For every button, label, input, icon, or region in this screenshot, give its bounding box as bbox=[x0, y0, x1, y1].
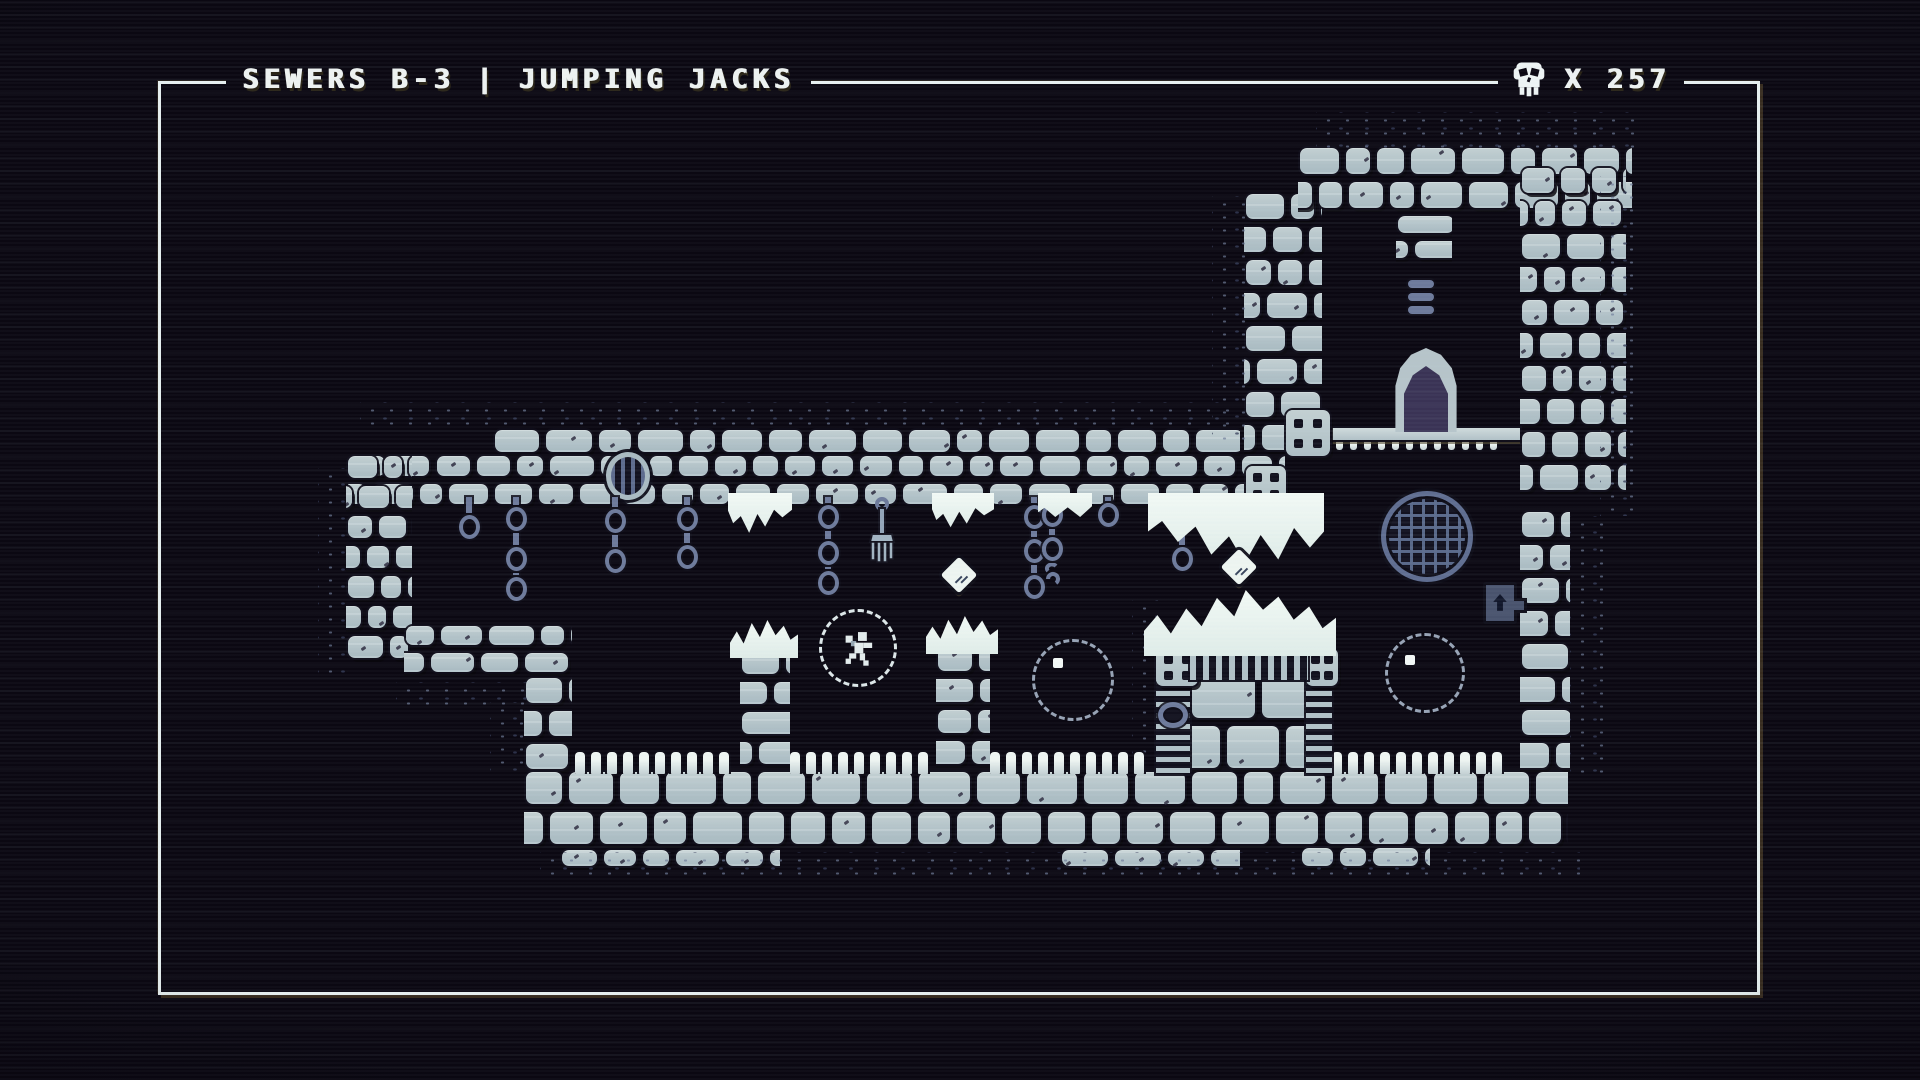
brick bbox=[1319, 182, 1343, 208]
brick-speck bbox=[1154, 822, 1160, 827]
brick bbox=[769, 430, 801, 452]
brick-speck bbox=[1312, 364, 1318, 369]
brick bbox=[1278, 260, 1302, 285]
ledge-tooth bbox=[1490, 441, 1497, 450]
brick-speck bbox=[816, 775, 822, 780]
floor-tooth bbox=[655, 752, 665, 774]
floor-tooth bbox=[822, 752, 832, 774]
brick bbox=[348, 636, 383, 658]
brick bbox=[1298, 182, 1312, 208]
brick bbox=[1390, 182, 1413, 208]
brick bbox=[549, 711, 572, 736]
floor-tooth bbox=[990, 752, 1000, 774]
floor-tooth bbox=[1118, 752, 1128, 774]
floor-tooth bbox=[591, 752, 601, 774]
brick-speck bbox=[1110, 462, 1116, 467]
brick bbox=[1540, 333, 1573, 358]
floor-tooth bbox=[671, 752, 681, 774]
brick bbox=[723, 772, 751, 804]
brick-speck bbox=[733, 469, 739, 474]
brick bbox=[346, 606, 361, 628]
brick-speck bbox=[1238, 759, 1244, 764]
brick bbox=[1579, 333, 1600, 358]
brick-speck bbox=[822, 444, 828, 449]
hanging-chain bbox=[607, 497, 623, 575]
brick bbox=[1084, 772, 1127, 804]
brick bbox=[569, 772, 613, 804]
brick bbox=[1562, 677, 1570, 702]
brick bbox=[1550, 545, 1570, 570]
brick bbox=[525, 653, 568, 672]
brick bbox=[1377, 148, 1405, 174]
floor-tooth bbox=[1070, 752, 1080, 774]
brick-speck bbox=[1502, 820, 1508, 825]
ledge-tooth bbox=[1406, 441, 1413, 450]
brick bbox=[1553, 366, 1573, 391]
brick bbox=[1535, 201, 1555, 226]
brick bbox=[1520, 333, 1533, 358]
brick-speck bbox=[1012, 462, 1018, 467]
brick bbox=[571, 626, 572, 645]
brick bbox=[381, 576, 402, 598]
brick bbox=[989, 430, 1029, 452]
floor-tooth bbox=[1086, 752, 1096, 774]
hanging-chain bbox=[1026, 497, 1042, 601]
brick bbox=[1170, 812, 1215, 844]
brick bbox=[1522, 234, 1560, 259]
brick-speck bbox=[997, 499, 1003, 504]
brick bbox=[1469, 182, 1508, 208]
brick bbox=[1222, 812, 1269, 844]
brick-speck bbox=[384, 562, 390, 567]
brick bbox=[809, 430, 857, 452]
chain-stem bbox=[1031, 497, 1037, 503]
brick-speck bbox=[1569, 205, 1575, 210]
brick bbox=[957, 812, 995, 844]
brick bbox=[1036, 430, 1079, 452]
brick bbox=[654, 812, 686, 844]
brick bbox=[441, 626, 482, 645]
left-pillar bbox=[740, 650, 790, 772]
brick-speck bbox=[1175, 462, 1181, 467]
brick bbox=[600, 812, 648, 844]
brick bbox=[1332, 772, 1378, 804]
dither-texture bbox=[318, 468, 348, 682]
brick bbox=[368, 606, 386, 628]
floor-teeth bbox=[575, 748, 741, 774]
brick bbox=[722, 430, 763, 452]
brick bbox=[495, 430, 539, 452]
ledge-tooth bbox=[1336, 441, 1343, 450]
ledge-tooth bbox=[1476, 441, 1483, 450]
brick bbox=[980, 679, 990, 702]
brick-speck bbox=[716, 495, 722, 500]
brick bbox=[517, 456, 543, 476]
brick bbox=[1156, 456, 1197, 476]
brick bbox=[420, 484, 442, 504]
brick bbox=[1027, 772, 1077, 804]
floor-tooth bbox=[886, 752, 896, 774]
brick bbox=[1520, 465, 1533, 490]
floor-tooth bbox=[1038, 752, 1048, 774]
brick bbox=[1192, 772, 1237, 804]
death-counter: X 257 bbox=[1564, 64, 1670, 95]
brick-speck bbox=[1247, 691, 1253, 696]
brick bbox=[1246, 260, 1271, 285]
brick-speck bbox=[451, 461, 457, 466]
brick bbox=[1000, 456, 1033, 476]
brick bbox=[1135, 772, 1185, 804]
brick-speck bbox=[465, 657, 471, 662]
brick-speck bbox=[791, 470, 797, 475]
brick-speck bbox=[1252, 302, 1258, 307]
floor-tooth bbox=[1428, 752, 1438, 774]
brick bbox=[1522, 512, 1554, 537]
brick-speck bbox=[1538, 618, 1544, 623]
chain-stem bbox=[684, 497, 690, 505]
brick-speck bbox=[1438, 150, 1444, 155]
floor-tooth bbox=[838, 752, 848, 774]
floor-tooth bbox=[1364, 752, 1374, 774]
hanging-chain bbox=[1100, 497, 1116, 529]
tower-emblem bbox=[1158, 702, 1188, 728]
brick-speck bbox=[1589, 474, 1595, 479]
floor-tooth bbox=[1460, 752, 1470, 774]
brick-speck bbox=[1570, 307, 1576, 312]
brick bbox=[867, 772, 912, 804]
brick-speck bbox=[390, 463, 396, 468]
brick bbox=[406, 626, 434, 645]
brick bbox=[1522, 432, 1545, 457]
brick bbox=[1567, 234, 1604, 259]
dither-texture bbox=[1316, 112, 1636, 148]
brick bbox=[690, 430, 715, 452]
hanging-chain bbox=[508, 497, 524, 603]
brick bbox=[1040, 456, 1081, 476]
brick bbox=[550, 812, 593, 844]
chain-link bbox=[818, 505, 839, 529]
brick bbox=[938, 710, 971, 733]
chain-stem bbox=[825, 497, 831, 503]
brick bbox=[1421, 182, 1463, 208]
chain-link bbox=[1098, 503, 1119, 527]
brick bbox=[860, 456, 893, 476]
brick-speck bbox=[576, 778, 582, 783]
brick bbox=[742, 712, 790, 734]
brick bbox=[1536, 772, 1568, 804]
brick bbox=[1349, 182, 1383, 208]
brick bbox=[970, 456, 993, 476]
brick bbox=[872, 812, 911, 844]
brick bbox=[524, 711, 542, 736]
brick-speck bbox=[937, 832, 943, 837]
brick bbox=[1522, 366, 1546, 391]
brick-speck bbox=[1222, 486, 1228, 491]
game-screen[interactable]: SEWERS B-3 | JUMPING JACKS X 257 bbox=[0, 0, 1920, 1080]
chain-stem bbox=[825, 567, 831, 569]
brick bbox=[1520, 201, 1528, 226]
brick bbox=[1192, 676, 1255, 718]
spring-coil bbox=[1408, 280, 1434, 314]
chain-link bbox=[459, 515, 480, 539]
brick bbox=[1267, 293, 1307, 318]
hanging-chain bbox=[461, 497, 477, 541]
brick-speck bbox=[1538, 217, 1544, 222]
floor-tooth bbox=[1134, 752, 1144, 774]
ledge-tooth bbox=[1434, 441, 1441, 450]
brick bbox=[1092, 812, 1120, 844]
brick-speck bbox=[1396, 248, 1401, 253]
empty-bubble bbox=[1032, 639, 1114, 721]
dither-texture bbox=[490, 702, 526, 774]
brick bbox=[1304, 359, 1322, 384]
chain-stem bbox=[513, 573, 519, 575]
brick bbox=[1484, 772, 1529, 804]
brick bbox=[1520, 743, 1549, 768]
brick-speck bbox=[1378, 838, 1384, 843]
brick bbox=[1048, 812, 1085, 844]
brick bbox=[785, 456, 815, 476]
brick bbox=[936, 741, 965, 764]
bubble-highlight bbox=[1053, 658, 1063, 668]
brick bbox=[650, 456, 672, 476]
left-ledge bbox=[404, 624, 572, 678]
brick bbox=[1555, 611, 1570, 636]
chain-link bbox=[677, 545, 698, 569]
brick-speck bbox=[1579, 277, 1585, 282]
brick-speck bbox=[379, 621, 385, 626]
brick bbox=[1244, 293, 1260, 318]
exit-door[interactable] bbox=[1392, 348, 1460, 432]
brick bbox=[919, 772, 969, 804]
brick bbox=[978, 710, 990, 733]
brick bbox=[1086, 430, 1111, 452]
right-pillar bbox=[936, 646, 990, 772]
brick bbox=[1522, 300, 1547, 325]
rivet-tile bbox=[1286, 410, 1330, 456]
floor-tooth bbox=[575, 752, 585, 774]
chain-link bbox=[506, 507, 527, 531]
brick-speck bbox=[707, 443, 713, 448]
brick bbox=[1124, 456, 1149, 476]
brick-speck bbox=[1129, 471, 1135, 476]
floor-tooth bbox=[1348, 752, 1358, 774]
ceiling-vent bbox=[606, 452, 650, 500]
ledge-tooth bbox=[1448, 441, 1455, 450]
brick bbox=[1309, 227, 1322, 252]
chain-stem bbox=[1031, 531, 1037, 537]
chain-stem bbox=[1031, 565, 1037, 573]
brick-speck bbox=[1289, 376, 1295, 381]
brick bbox=[346, 546, 360, 568]
brick bbox=[899, 456, 923, 476]
up-arrow-icon bbox=[1491, 591, 1509, 615]
brick bbox=[1300, 148, 1339, 174]
floor-teeth bbox=[1332, 748, 1522, 774]
brick bbox=[1262, 676, 1308, 718]
brick bbox=[1002, 812, 1040, 844]
brick bbox=[1520, 677, 1555, 702]
brick bbox=[409, 456, 412, 478]
brick-speck bbox=[416, 640, 422, 645]
chain-stem bbox=[513, 533, 519, 545]
brick bbox=[666, 772, 716, 804]
brick-speck bbox=[1217, 467, 1223, 472]
player-bubble[interactable] bbox=[819, 609, 897, 687]
floor-tooth bbox=[1492, 752, 1502, 774]
chain-link bbox=[818, 571, 839, 595]
brick-speck bbox=[610, 443, 616, 448]
brick bbox=[1544, 267, 1565, 292]
brick-speck bbox=[412, 470, 418, 475]
floor-tooth bbox=[790, 752, 800, 774]
brick bbox=[822, 456, 853, 476]
brick bbox=[1314, 293, 1322, 318]
brick bbox=[477, 456, 510, 476]
brick bbox=[832, 812, 866, 844]
brick-speck bbox=[962, 434, 968, 439]
brick bbox=[930, 456, 963, 476]
brick bbox=[524, 812, 543, 844]
brick bbox=[1455, 812, 1489, 844]
brick bbox=[774, 682, 790, 704]
brick-speck bbox=[528, 462, 534, 467]
floor-band bbox=[524, 770, 1568, 850]
ledge-tooth bbox=[1420, 441, 1427, 450]
brick bbox=[1257, 359, 1297, 384]
brick-speck bbox=[917, 487, 923, 492]
chain-stem bbox=[684, 533, 690, 543]
brick bbox=[1163, 430, 1189, 452]
brick bbox=[1626, 148, 1632, 174]
chain-link bbox=[1042, 537, 1063, 561]
brick bbox=[753, 456, 779, 476]
brick bbox=[1118, 430, 1156, 452]
dither-texture bbox=[1570, 516, 1610, 776]
up-arrow-sign bbox=[1483, 582, 1517, 624]
brick bbox=[1244, 772, 1273, 804]
brick-speck bbox=[360, 646, 366, 651]
dither-texture bbox=[1600, 176, 1644, 516]
brick bbox=[1415, 241, 1452, 258]
floor-tooth bbox=[1444, 752, 1454, 774]
chain-hook-icon bbox=[1041, 563, 1063, 591]
brick-speck bbox=[1543, 253, 1549, 258]
brick-speck bbox=[434, 494, 440, 499]
dither-texture bbox=[360, 402, 1240, 430]
brick-speck bbox=[1560, 369, 1566, 374]
brick bbox=[1246, 392, 1274, 417]
brick bbox=[1244, 227, 1266, 252]
brick bbox=[749, 812, 784, 844]
brick bbox=[384, 456, 401, 478]
brick bbox=[1522, 644, 1568, 669]
brick bbox=[1411, 148, 1454, 174]
corridor-ceiling bbox=[348, 454, 1285, 510]
brick-speck bbox=[1562, 561, 1568, 566]
brick bbox=[546, 430, 592, 452]
brick bbox=[539, 484, 573, 504]
ledge-tooth bbox=[1364, 441, 1371, 450]
chain-link bbox=[1172, 547, 1193, 571]
brick bbox=[1552, 432, 1578, 457]
brick-speck bbox=[1163, 800, 1169, 805]
brick-speck bbox=[984, 462, 990, 467]
brick bbox=[638, 430, 683, 452]
brick bbox=[1190, 726, 1220, 768]
brick-speck bbox=[1396, 194, 1402, 199]
brick bbox=[1522, 578, 1559, 603]
brick-speck bbox=[1500, 201, 1506, 206]
brick-speck bbox=[1303, 814, 1309, 819]
brick bbox=[1547, 399, 1574, 424]
brick-speck bbox=[1527, 273, 1533, 278]
chain-stem bbox=[1105, 497, 1111, 501]
floor-tooth bbox=[639, 752, 649, 774]
brick-speck bbox=[1586, 380, 1592, 385]
brick bbox=[404, 653, 424, 672]
tower-core bbox=[1190, 674, 1308, 774]
player-character-icon bbox=[835, 625, 881, 671]
brick bbox=[396, 546, 412, 568]
brick-speck bbox=[551, 791, 557, 796]
brick-speck bbox=[843, 820, 849, 825]
brick-speck bbox=[1537, 582, 1543, 587]
bubble-highlight bbox=[1405, 655, 1415, 665]
brick bbox=[1561, 512, 1570, 537]
brick-speck bbox=[864, 466, 870, 471]
chain-link bbox=[506, 577, 527, 601]
brick bbox=[1127, 812, 1163, 844]
brick bbox=[812, 772, 860, 804]
brick-speck bbox=[1294, 304, 1300, 309]
brick bbox=[1415, 812, 1448, 844]
brick bbox=[1522, 168, 1554, 193]
floor-tooth bbox=[902, 752, 912, 774]
brick bbox=[1561, 168, 1585, 193]
chain-stem bbox=[513, 497, 519, 505]
brick-speck bbox=[573, 825, 579, 830]
brick bbox=[1520, 267, 1537, 292]
floor-tooth bbox=[1396, 752, 1406, 774]
ledge-tooth bbox=[1378, 441, 1385, 450]
brick bbox=[431, 653, 474, 672]
floor-tooth bbox=[1054, 752, 1064, 774]
empty-bubble bbox=[1385, 633, 1465, 713]
chain-link bbox=[506, 547, 527, 571]
brick-speck bbox=[571, 436, 577, 441]
brick-speck bbox=[1349, 833, 1355, 838]
brick bbox=[990, 484, 1023, 504]
right-wall-lower bbox=[1520, 510, 1570, 776]
floor-tooth bbox=[854, 752, 864, 774]
floor-tooth bbox=[623, 752, 633, 774]
brick-speck bbox=[465, 635, 471, 640]
brick bbox=[977, 772, 1020, 804]
brick-speck bbox=[989, 823, 995, 828]
brick bbox=[1522, 710, 1570, 735]
left-wall bbox=[346, 454, 412, 678]
floor-tooth bbox=[1412, 752, 1422, 774]
dither-texture bbox=[1212, 196, 1246, 446]
brick-speck bbox=[554, 470, 560, 475]
brick bbox=[620, 772, 659, 804]
brick-speck bbox=[1542, 518, 1548, 523]
brick bbox=[367, 546, 390, 568]
brick bbox=[396, 486, 412, 508]
brick-speck bbox=[945, 461, 951, 466]
floor-tooth bbox=[1476, 752, 1486, 774]
